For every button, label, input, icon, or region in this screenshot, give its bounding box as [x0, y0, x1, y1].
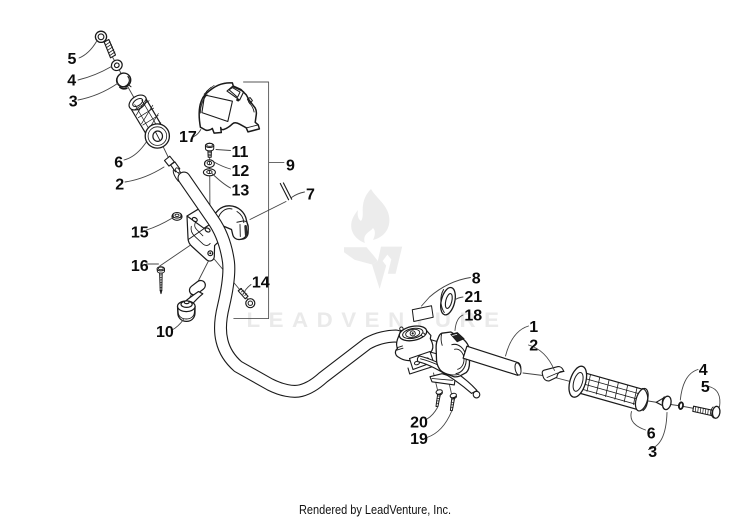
svg-text:15: 15: [131, 224, 149, 241]
svg-text:20: 20: [410, 414, 428, 431]
svg-text:2: 2: [115, 177, 124, 194]
svg-text:3: 3: [648, 444, 657, 461]
svg-text:16: 16: [131, 258, 149, 275]
svg-text:10: 10: [156, 324, 174, 341]
svg-text:18: 18: [464, 308, 482, 325]
svg-text:17: 17: [179, 129, 197, 146]
svg-text:19: 19: [410, 431, 428, 448]
svg-text:4: 4: [67, 73, 76, 90]
svg-text:3: 3: [69, 93, 78, 110]
svg-text:4: 4: [699, 362, 708, 379]
svg-text:9: 9: [286, 158, 295, 175]
svg-text:5: 5: [701, 379, 710, 396]
svg-text:8: 8: [472, 271, 481, 288]
svg-text:7: 7: [306, 186, 315, 203]
svg-text:5: 5: [68, 51, 77, 68]
svg-text:Rendered by LeadVenture, Inc.: Rendered by LeadVenture, Inc.: [299, 503, 451, 517]
svg-text:14: 14: [252, 274, 270, 291]
svg-text:6: 6: [647, 425, 656, 442]
svg-text:21: 21: [464, 289, 482, 306]
svg-text:13: 13: [232, 183, 250, 200]
svg-text:12: 12: [232, 163, 250, 180]
svg-text:2: 2: [529, 337, 538, 354]
svg-text:6: 6: [114, 154, 123, 171]
svg-text:11: 11: [232, 144, 249, 161]
svg-text:1: 1: [529, 319, 538, 336]
